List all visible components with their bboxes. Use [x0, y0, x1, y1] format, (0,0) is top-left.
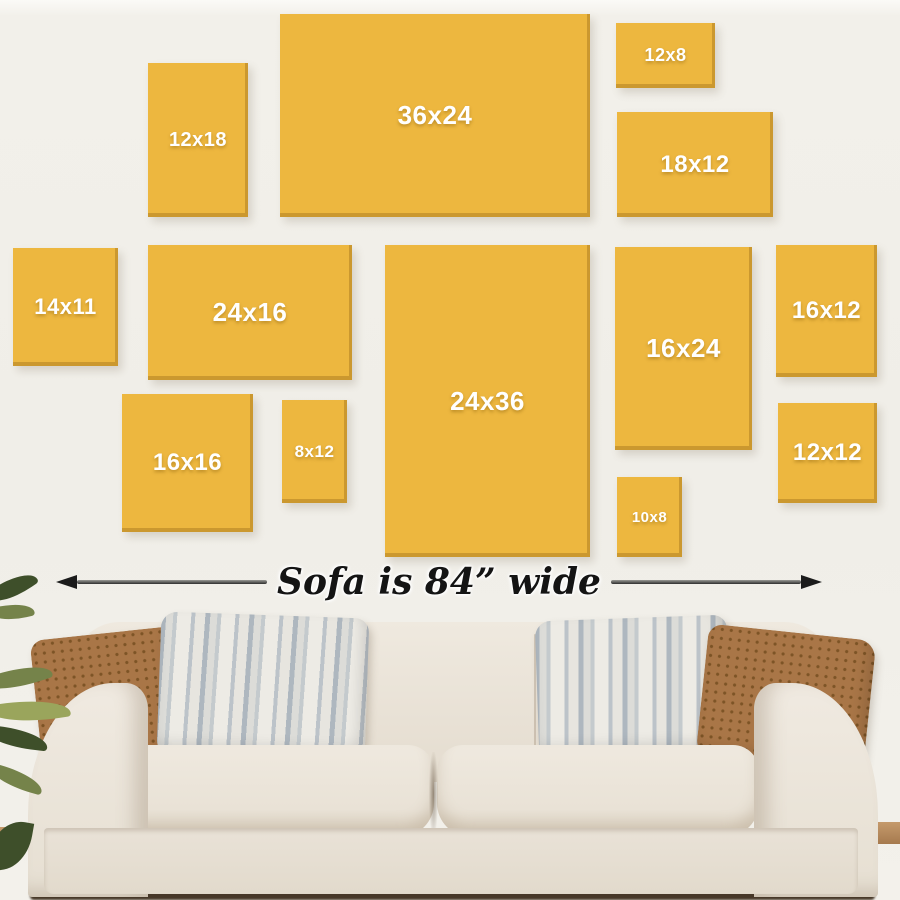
frame-size-label: 12x12 [793, 439, 862, 467]
frame-8x12: 8x12 [282, 400, 347, 503]
dimension-line-right [611, 580, 801, 584]
arrowhead-left-icon [56, 575, 77, 589]
seat-cushion-right [437, 745, 759, 837]
frame-16x16: 16x16 [122, 394, 253, 532]
frame-14x11: 14x11 [13, 248, 118, 366]
frame-12x8: 12x8 [616, 23, 715, 88]
frame-size-label: 12x8 [644, 45, 686, 66]
frame-size-label: 16x24 [646, 333, 721, 364]
dimension-text: Sofa is 84” wide [267, 561, 611, 603]
frame-size-label: 36x24 [398, 100, 473, 131]
dimension-line-left [77, 580, 267, 584]
arrowhead-right-icon [801, 575, 822, 589]
frame-36x24: 36x24 [280, 14, 590, 217]
frame-24x16: 24x16 [148, 245, 352, 380]
frame-size-label: 24x36 [450, 386, 525, 417]
frame-size-label: 14x11 [34, 294, 96, 320]
frame-size-label: 10x8 [632, 509, 667, 526]
frame-24x36: 24x36 [385, 245, 590, 557]
frame-size-label: 24x16 [213, 297, 288, 328]
frame-size-label: 18x12 [660, 151, 729, 179]
frame-size-label: 16x16 [153, 449, 222, 477]
frame-18x12: 18x12 [617, 112, 773, 217]
plant-leaf [0, 600, 35, 625]
sofa-base [44, 828, 858, 894]
frame-12x12: 12x12 [778, 403, 877, 503]
frame-size-label: 16x12 [792, 297, 861, 325]
frame-size-label: 8x12 [295, 442, 335, 462]
frame-10x8: 10x8 [617, 477, 682, 557]
seat-cushion-seam [429, 752, 438, 836]
seat-cushion-left [112, 745, 434, 837]
frame-size-label: 12x18 [169, 129, 227, 152]
dimension-arrow: Sofa is 84” wide [56, 556, 822, 608]
pillow-striped-left [157, 611, 370, 759]
wall-art-size-guide: 12x1836x2412x818x1214x1124x1624x3616x241… [0, 0, 900, 900]
frame-16x12: 16x12 [776, 245, 877, 377]
frame-16x24: 16x24 [615, 247, 752, 450]
frame-12x18: 12x18 [148, 63, 248, 217]
